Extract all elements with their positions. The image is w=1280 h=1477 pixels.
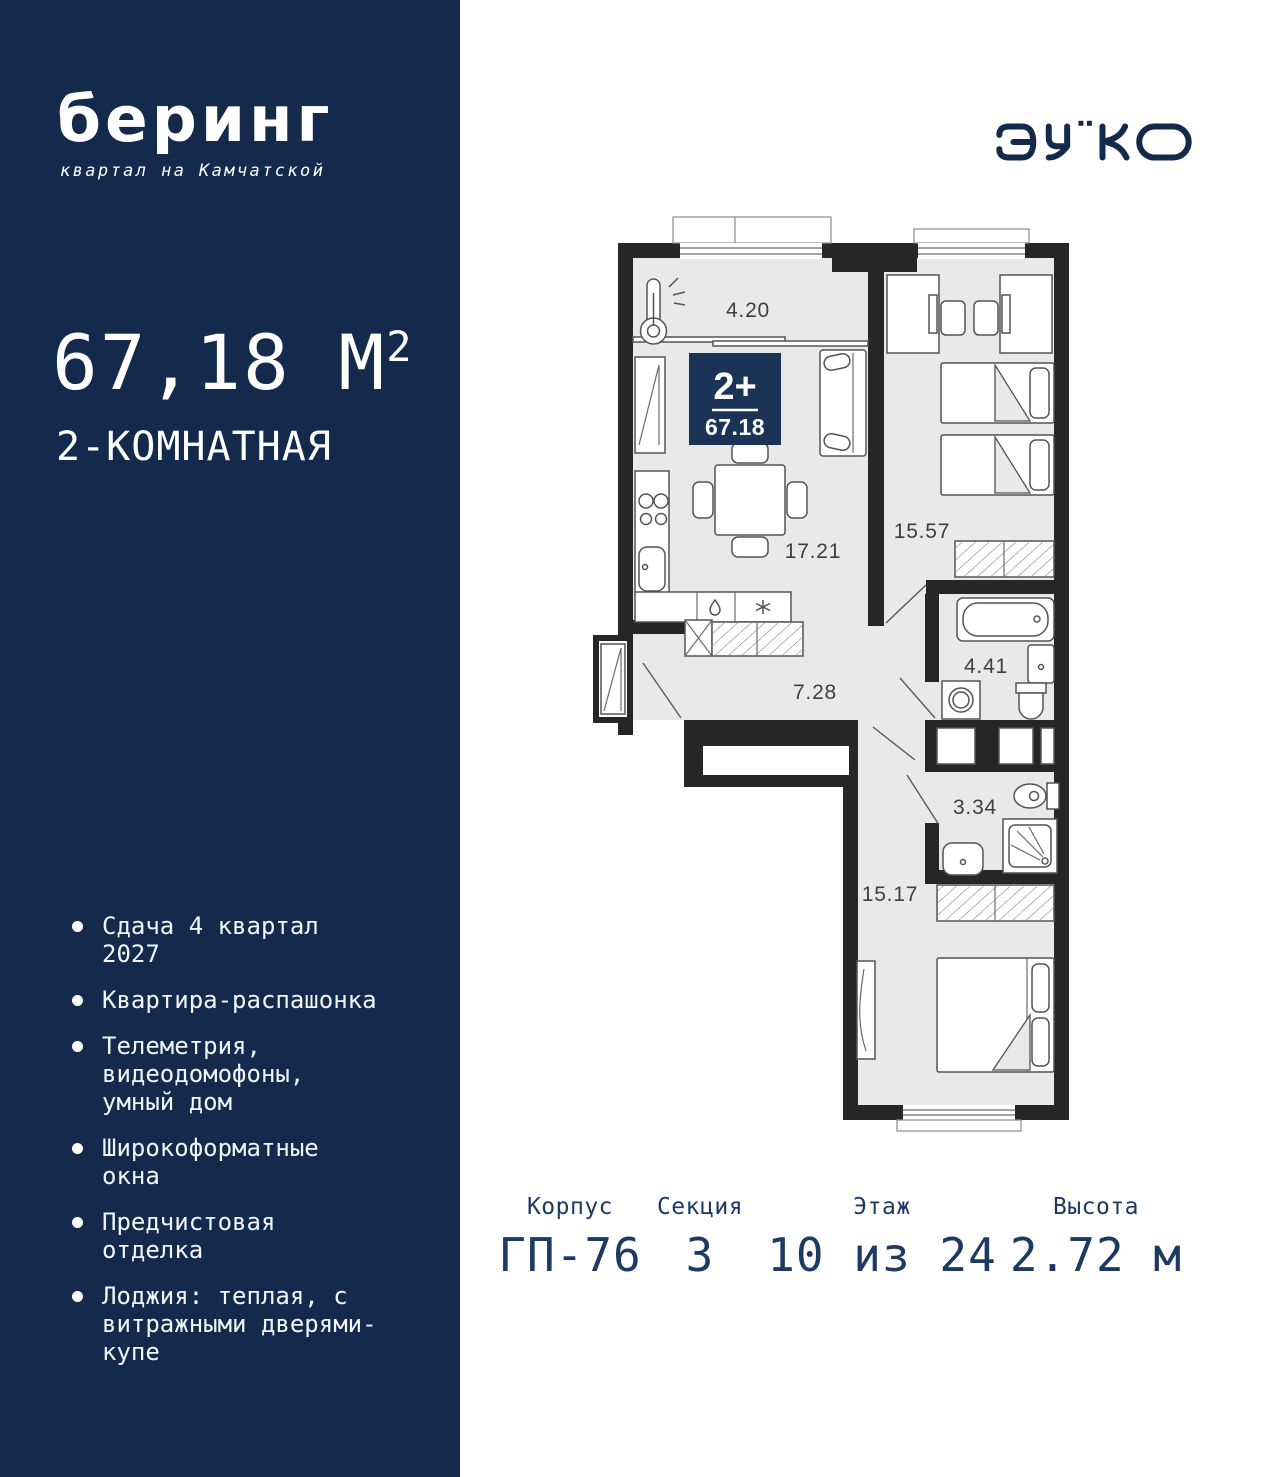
info-label: Секция <box>657 1194 743 1220</box>
bullet-icon <box>72 1217 83 1228</box>
info-value: 10 из 24 <box>767 1228 997 1282</box>
feature-item: Предчистовая отделка <box>72 1208 388 1264</box>
entrance-vestibule <box>593 635 633 723</box>
room-label-bedroom2: 15.17 <box>862 883 919 906</box>
sofa <box>820 350 866 456</box>
exterior-niche <box>703 746 849 775</box>
badge-rooms: 2+ <box>713 366 756 408</box>
enko-logo <box>988 118 1200 166</box>
feature-list: Сдача 4 квартал 2027 Квартира-распашонка… <box>72 912 388 1384</box>
single-bed-2 <box>941 435 1054 495</box>
kitchen-lower-counter <box>635 592 791 622</box>
flyer-root: { "sidebar": { "brand": { "name": "берин… <box>0 0 1280 1477</box>
floor-plan: 4.20 17.21 15.57 4.41 7.28 3.34 15.17 2+… <box>585 215 1105 1135</box>
apartment-area-sup: 2 <box>386 322 413 371</box>
mirror-cabinet <box>857 961 875 1059</box>
feature-item: Квартира-распашонка <box>72 986 388 1014</box>
bullet-icon <box>72 1041 83 1052</box>
feature-item: Сдача 4 квартал 2027 <box>72 912 388 968</box>
room-label-wc: 3.34 <box>953 796 997 819</box>
feature-item: Лоджия: теплая, с витражными дверями-куп… <box>72 1282 388 1366</box>
info-value: 2.72 м <box>1010 1228 1182 1282</box>
info-label: Высота <box>1010 1194 1182 1220</box>
room-label-bedroom1: 15.57 <box>894 520 951 543</box>
fridge <box>635 357 665 453</box>
washing-machine <box>942 681 980 719</box>
bedroom-bottom-wardrobe <box>937 885 1054 921</box>
info-sekcia: Секция 3 <box>657 1194 743 1282</box>
balcony-window <box>673 217 831 259</box>
bullet-icon <box>72 921 83 932</box>
feature-text: Предчистовая отделка <box>102 1208 275 1264</box>
room-label-bathroom: 4.41 <box>964 655 1008 678</box>
info-etazh: Этаж 10 из 24 <box>767 1194 997 1282</box>
bullet-icon <box>72 995 83 1006</box>
info-value: ГП-76 <box>498 1228 641 1282</box>
feature-text: Сдача 4 квартал 2027 <box>102 912 319 968</box>
kitchen-counter <box>635 471 669 595</box>
plan-badge: 2+ 67.18 <box>689 353 781 445</box>
entrance-opening <box>633 720 684 735</box>
double-bed <box>937 958 1054 1072</box>
info-value: 3 <box>657 1228 743 1282</box>
enko-letter-o <box>1139 126 1188 157</box>
apartment-type: 2-КОМНАТНАЯ <box>56 424 332 470</box>
toilet-bath <box>1016 683 1046 719</box>
room-label-living: 17.21 <box>785 540 842 563</box>
enko-letter-n <box>1049 126 1067 157</box>
info-label: Корпус <box>498 1194 641 1220</box>
toilet-wc <box>1014 783 1059 809</box>
bath-sink <box>1028 645 1054 683</box>
bedroom-bottom-window <box>897 1105 1021 1131</box>
bullet-icon <box>72 1291 83 1302</box>
brand-tagline: квартал на Камчатской <box>57 161 333 181</box>
bedroom-top-wardrobe <box>955 541 1054 577</box>
feature-item: Телеметрия, видеодомофоны, умный дом <box>72 1032 388 1116</box>
brand-name: беринг <box>57 88 333 151</box>
single-bed-1 <box>941 363 1054 423</box>
sidebar: беринг квартал на Камчатской 67,18 М2 2-… <box>0 0 460 1477</box>
enko-letter-k <box>1102 126 1126 157</box>
feature-text: Телеметрия, видеодомофоны, умный дом <box>102 1032 304 1116</box>
hall-wardrobe <box>685 620 803 656</box>
apartment-area: 67,18 М2 <box>52 318 414 407</box>
info-label: Этаж <box>767 1194 997 1220</box>
info-korpus: Корпус ГП-76 <box>498 1194 641 1282</box>
shower <box>1003 819 1057 873</box>
feature-text: Широкоформатные окна <box>102 1134 319 1190</box>
room-label-balcony: 4.20 <box>726 299 770 322</box>
wc-sink <box>943 843 983 875</box>
bullet-icon <box>72 1143 83 1154</box>
feature-text: Квартира-распашонка <box>102 986 377 1014</box>
feature-item: Широкоформатные окна <box>72 1134 388 1190</box>
apartment-area-value: 67,18 М <box>52 318 386 407</box>
badge-area: 67.18 <box>705 414 765 440</box>
bathtub <box>957 598 1054 641</box>
brand-logo: беринг квартал на Камчатской <box>57 88 333 181</box>
feature-text: Лоджия: теплая, с витражными дверями-куп… <box>102 1282 377 1366</box>
bedroom-top-window <box>914 229 1029 259</box>
info-vysota: Высота 2.72 м <box>1010 1194 1182 1282</box>
room-label-hallway: 7.28 <box>793 681 837 704</box>
